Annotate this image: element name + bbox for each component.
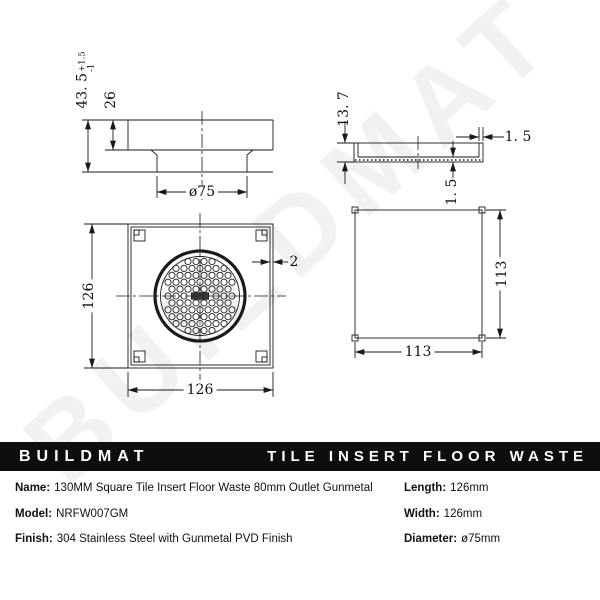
dim-rim-wall: 2	[290, 255, 299, 269]
detail-row-name: Name:130MM Square Tile Insert Floor Wast…	[15, 481, 385, 495]
spec-sheet: BUILDMAT	[0, 0, 600, 600]
detail-row-diameter: Diameter:ø75mm	[404, 532, 594, 546]
dim-tray-plan-width: 113	[402, 345, 435, 359]
dim-body-height: 126	[82, 280, 96, 313]
tray-side-view	[337, 121, 504, 184]
detail-row-length: Length:126mm	[404, 481, 594, 495]
detail-row-width: Width:126mm	[404, 507, 594, 521]
product-category-title: TILE INSERT FLOOR WASTE	[267, 448, 588, 465]
details-left-column: Name:130MM Square Tile Insert Floor Wast…	[15, 481, 385, 558]
brand-logo: BUILDMAT	[19, 448, 149, 466]
title-banner: BUILDMAT TILE INSERT FLOOR WASTE	[0, 442, 600, 471]
dim-tray-wall: 1. 5	[505, 130, 532, 144]
details-right-column: Length:126mm Width:126mm Diameter:ø75mm	[404, 481, 594, 558]
body-side-view	[82, 111, 273, 200]
dim-body-width: 126	[184, 383, 217, 397]
dim-tray-height: 13. 7	[337, 91, 351, 127]
detail-row-finish: Finish:304 Stainless Steel with Gunmetal…	[15, 532, 385, 546]
detail-row-model: Model:NRFW007GM	[15, 507, 385, 521]
dim-flange-height: 26	[104, 91, 118, 109]
dim-tray-plan-height: 113	[495, 258, 509, 291]
dim-tray-base: 1. 5	[445, 179, 459, 206]
dim-overall-height: 43. 5+1.5-1	[76, 51, 97, 108]
tray-top-view	[352, 207, 506, 358]
top-view	[84, 213, 288, 397]
dim-outlet-diameter: ø75	[186, 185, 218, 199]
